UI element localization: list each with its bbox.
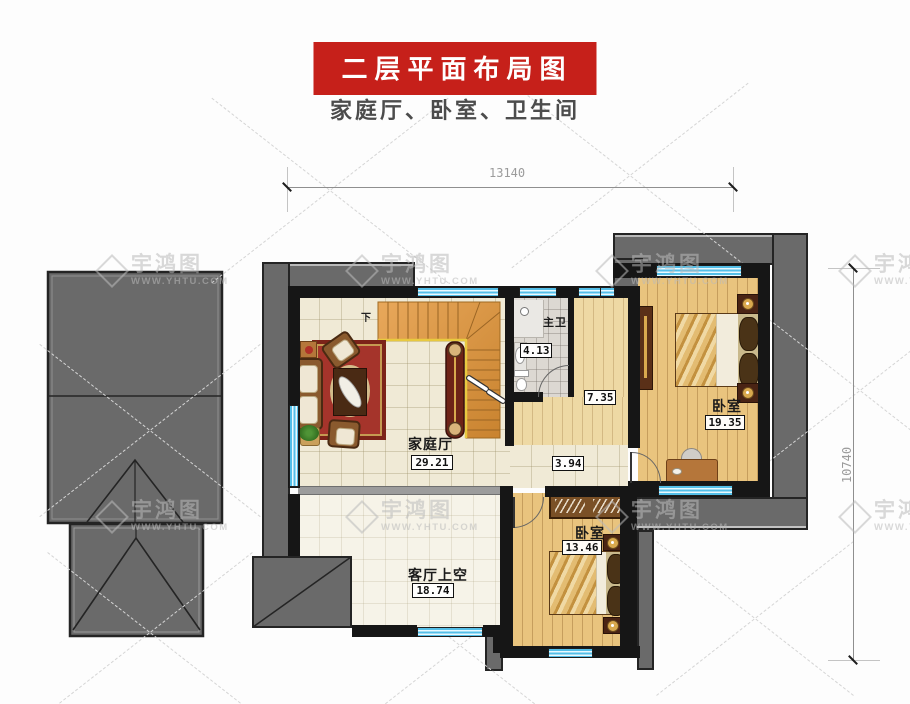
watermark-url: WWW.YHTU.COM	[874, 522, 910, 533]
bed-south	[549, 551, 624, 615]
wall-segment	[758, 263, 770, 497]
sofa-cushion	[299, 365, 318, 393]
dim-line-top	[287, 187, 733, 188]
window	[658, 485, 733, 496]
window	[417, 627, 483, 637]
staircase	[374, 296, 506, 446]
toilet-tank	[514, 370, 529, 377]
room-label-bedroom-east: 卧室	[712, 396, 742, 416]
roof-band-south-of-bedroom	[623, 497, 808, 530]
wall-segment	[505, 286, 514, 446]
roof-band-east	[772, 233, 808, 530]
area-label-living-void: 18.74	[412, 583, 454, 598]
bed-sheet	[716, 314, 739, 386]
wardrobe-hangers	[555, 499, 585, 513]
roof-band-west	[262, 262, 290, 558]
area-label-corridor: 7.35	[584, 390, 616, 405]
armchair-cushion	[335, 427, 355, 445]
room-label-master-bath: 主卫	[543, 314, 567, 330]
window	[600, 287, 615, 297]
room-label-family-hall: 家庭厅	[408, 434, 453, 454]
structural-beam	[298, 486, 503, 495]
wall-segment	[352, 625, 417, 637]
area-label-master-bath: 4.13	[520, 343, 552, 358]
area-label-bedroom-east: 19.35	[705, 415, 745, 430]
armchair-cushion	[330, 338, 355, 363]
bed-blanket	[676, 314, 716, 386]
room-label-living-void: 客厅上空	[408, 565, 468, 585]
watermark-name: 宇鸿图	[874, 500, 910, 522]
pillow	[739, 317, 759, 351]
corridor-floor-upper	[574, 298, 628, 403]
window	[548, 648, 593, 658]
dim-label-height: 10740	[840, 444, 854, 486]
lamp-icon	[742, 298, 754, 310]
garage-roof	[40, 265, 230, 645]
wall-segment	[620, 488, 637, 658]
wall-segment	[545, 486, 637, 497]
lamp-icon	[607, 537, 619, 549]
lamp-icon	[742, 387, 754, 399]
door-leaf	[630, 452, 632, 483]
tv-cabinet-detail	[644, 316, 647, 378]
floor-plan-canvas: 下	[0, 0, 910, 704]
side-table	[300, 341, 317, 358]
stairs-down-label: 下	[361, 309, 371, 324]
window	[656, 265, 742, 277]
dim-label-width: 13140	[486, 166, 528, 180]
coffee-table	[333, 368, 367, 416]
area-label-hallway: 3.94	[552, 456, 584, 471]
area-label-bedroom-south: 13.46	[562, 540, 602, 555]
area-label-family-hall: 29.21	[411, 455, 453, 470]
nightstand	[737, 294, 759, 314]
wardrobe-hangers	[593, 499, 623, 513]
window	[289, 405, 299, 487]
desk-item	[672, 468, 682, 475]
flower-pot	[305, 346, 313, 354]
plant	[299, 425, 319, 441]
shower-head-icon	[520, 307, 529, 316]
roof-slope-southwest	[249, 553, 355, 633]
wall-segment	[628, 298, 640, 448]
wall-segment	[500, 486, 513, 497]
watermark-name: 宇鸿图	[874, 254, 910, 276]
sofa-cushion	[299, 396, 318, 424]
window	[519, 287, 557, 297]
window	[417, 287, 499, 297]
lamp-icon	[607, 620, 619, 632]
pillow	[739, 353, 759, 387]
toilet-bowl	[516, 378, 527, 391]
shower-area	[514, 300, 544, 338]
wall-segment	[500, 488, 513, 658]
watermark-url: WWW.YHTU.COM	[874, 276, 910, 287]
page-subtitle: 家庭厅、卧室、卫生间	[0, 93, 910, 125]
coffee-table-glass	[334, 373, 365, 411]
page-title: 二层平面布局图	[313, 42, 596, 95]
yhtu-logo-icon	[838, 500, 872, 534]
bed-east	[675, 313, 758, 387]
door-leaf	[513, 497, 515, 528]
wall-segment	[288, 494, 300, 556]
bed-blanket	[550, 552, 596, 614]
armchair	[327, 419, 361, 449]
